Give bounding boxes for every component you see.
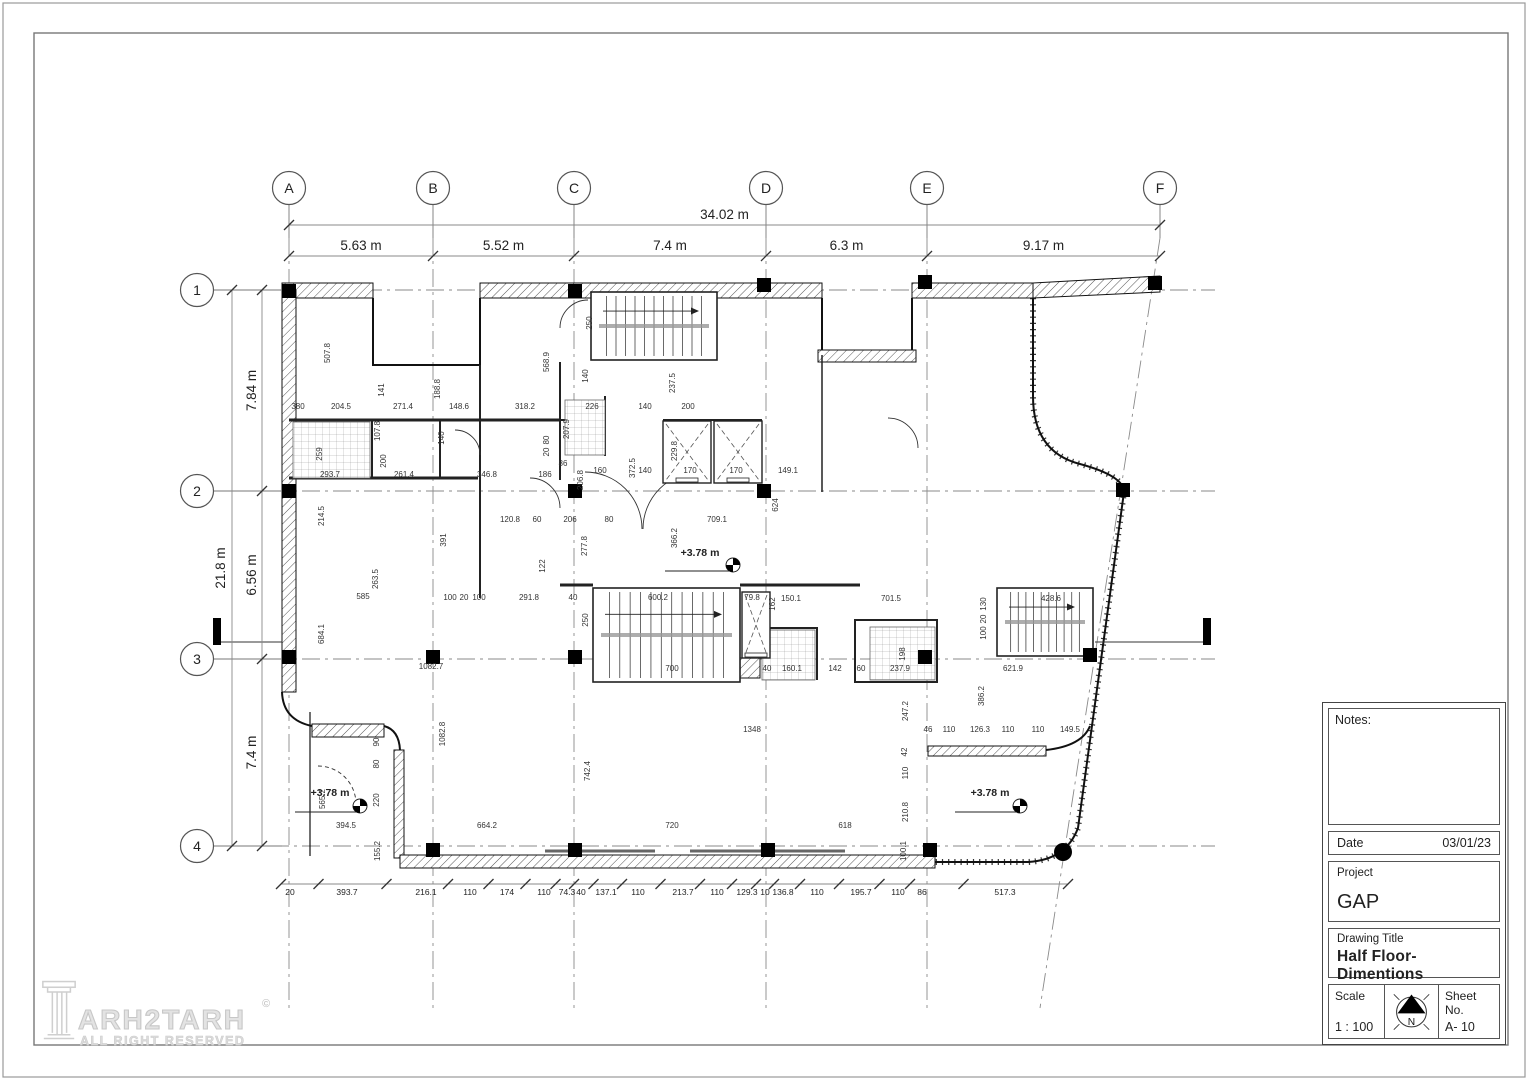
notes-label: Notes: [1335, 713, 1371, 727]
dimension-label: 162 [768, 597, 777, 611]
dimension-label: 391 [439, 533, 448, 547]
wall-top-4-slanted [1033, 276, 1160, 298]
structural-column [757, 484, 771, 498]
dimension-label: 621.9 [1003, 664, 1024, 673]
structural-column [761, 843, 775, 857]
dimension-label: 1082.7 [419, 662, 444, 671]
dimension-label: 79.8 [744, 593, 760, 602]
dimension-label: 720 [665, 821, 679, 830]
dimension-label: 100.1 [899, 840, 908, 861]
date-label: Date [1337, 836, 1363, 850]
dim-text-top-segment: 6.3 m [830, 238, 864, 253]
dim-text-bottom: 110 [537, 887, 551, 897]
dimension-label: 60 [857, 664, 866, 673]
dim-text-bottom: 213.7 [672, 887, 694, 897]
structural-column [426, 843, 440, 857]
dimension-label: 1348 [743, 725, 761, 734]
dimension-label: 110 [901, 766, 910, 779]
level-marker-text: +3.78 m [971, 787, 1010, 799]
dimension-label: 346.8 [477, 470, 498, 479]
dimension-label: 207.9 [562, 418, 571, 439]
dimension-label: 186 [538, 470, 552, 479]
date-value: 03/01/23 [1442, 836, 1491, 850]
dimension-label: 428.6 [1041, 594, 1062, 603]
dimension-label: 618 [838, 821, 852, 830]
dim-text-bottom: 129.3 [736, 887, 758, 897]
dimension-label: 80 [605, 515, 614, 524]
level-marker-text: +3.78 m [311, 787, 350, 799]
sheet-number-label: Sheet No. [1445, 989, 1476, 1017]
dimension-label: 237.9 [890, 664, 911, 673]
fixtures-layer [213, 275, 1211, 861]
grid-bubble-label-F: F [1156, 180, 1165, 196]
structural-column [282, 484, 296, 498]
dimension-label: 709.1 [707, 515, 728, 524]
dimension-label: 40 [569, 593, 578, 602]
dim-text-bottom: 110 [810, 887, 824, 897]
floor-plan-canvas: ABCDEF123434.02 m5.63 m5.52 m7.4 m6.3 m9… [0, 0, 1528, 1080]
dimension-label: 261.4 [394, 470, 415, 479]
sheet-number-cell: Sheet No. A- 10 [1439, 985, 1499, 1038]
structural-column [757, 278, 771, 292]
north-arrow-icon: N [1391, 989, 1432, 1035]
structural-column [923, 843, 937, 857]
outer-border [3, 3, 1525, 1077]
logo-copyright: © [262, 998, 270, 1010]
dimension-label: 291.8 [519, 593, 540, 602]
elevator-door [727, 478, 749, 482]
dim-text-bottom: 110 [891, 887, 905, 897]
staircase [591, 292, 717, 360]
dimension-label: 220 [372, 793, 381, 807]
dim-text-left-segment: 7.84 m [244, 370, 259, 411]
dimension-label: 277.8 [580, 535, 589, 556]
dimension-label: 40 [763, 664, 772, 673]
dimension-label: 170 [683, 466, 697, 475]
dim-text-bottom: 20 [285, 887, 295, 897]
wall-bottom [400, 855, 935, 868]
elevator-door [676, 478, 698, 482]
dimension-label: 126.3 [970, 725, 991, 734]
dimension-label: 271.4 [393, 402, 414, 411]
dimension-label: 140 [638, 402, 652, 411]
dimension-label: 60 [533, 515, 542, 524]
dimension-label: 140 [638, 466, 652, 475]
scale-value: 1 : 100 [1335, 1020, 1373, 1034]
structural-column [282, 284, 296, 298]
dim-text-bottom: 195.7 [850, 887, 872, 897]
dimension-label: 263.5 [371, 568, 380, 589]
stair-rail [599, 324, 709, 328]
stair-rail [601, 633, 732, 637]
dimension-label: 140 [581, 369, 590, 383]
level-marker-text: +3.78 m [681, 547, 720, 559]
dimension-label: 200 [379, 454, 388, 468]
dimension-label: 394.5 [336, 821, 357, 830]
logo-brand: ARH2TARH [78, 1004, 246, 1036]
dimension-label: 160.1 [782, 664, 803, 673]
drawing-title-value: Half Floor- Dimentions [1337, 948, 1491, 984]
column-icon [40, 978, 78, 1044]
dimension-label: 80 [372, 759, 381, 768]
structural-column [568, 650, 582, 664]
dimension-label: 664.2 [477, 821, 498, 830]
dimension-label: 206 [563, 515, 577, 524]
dim-text-bottom: 216.1 [415, 887, 437, 897]
section-marker [213, 618, 221, 645]
dimension-label: 20 [542, 447, 551, 456]
dim-text-top-segment: 7.4 m [653, 238, 687, 253]
grid-bubble-label-2: 2 [193, 483, 201, 499]
dim-text-bottom: 110 [463, 887, 477, 897]
dim-text-bottom: 86 [917, 887, 927, 897]
logo-tagline: ALL RIGHT RESERVED [80, 1034, 245, 1048]
dimension-label: 149.5 [1060, 725, 1081, 734]
structural-column [568, 284, 582, 298]
structural-column [1083, 648, 1097, 662]
dimension-label: 507.8 [323, 342, 332, 363]
dimension-label: 122 [538, 559, 547, 573]
dim-text-top-total: 34.02 m [700, 207, 749, 222]
dimension-label: 141 [377, 383, 386, 397]
dim-text-left-segment: 6.56 m [244, 554, 259, 595]
title-block-bottom-row: Scale 1 : 100 N Sheet No. A- 10 [1328, 984, 1500, 1039]
structural-column [1148, 276, 1162, 290]
notes-box: Notes: [1328, 708, 1500, 825]
dimension-label: 226 [585, 402, 599, 411]
dimension-label: 700 [665, 664, 679, 673]
door-arcs [318, 300, 931, 804]
grid-bubble-label-E: E [922, 180, 931, 196]
dimension-label: 250 [581, 613, 590, 627]
dim-text-bottom: 137.1 [595, 887, 617, 897]
dimension-label: 380 [291, 402, 305, 411]
dimension-label: 148.6 [449, 402, 470, 411]
dim-text-bottom: 136.8 [772, 887, 794, 897]
wall-curtain-right [935, 298, 1124, 862]
dimension-label: 20 [460, 593, 469, 602]
date-box: Date 03/01/23 [1328, 831, 1500, 855]
dim-text-top-segment: 5.52 m [483, 238, 524, 253]
drawing-title-label: Drawing Title [1337, 933, 1491, 945]
structural-column [282, 650, 296, 664]
dimension-label: 110 [943, 725, 956, 734]
dimension-label: 684.1 [317, 623, 326, 644]
section-marker [1203, 618, 1211, 645]
grid-bubble-label-4: 4 [193, 838, 201, 854]
grid-bubble-label-3: 3 [193, 651, 201, 667]
dimension-label: 200 [681, 402, 695, 411]
elevator-door [745, 653, 767, 657]
dimension-label: 229.8 [670, 440, 679, 461]
project-box: Project GAP [1328, 861, 1500, 922]
firm-logo: ARH2TARH © ALL RIGHT RESERVED [40, 976, 270, 1048]
dimension-label: 160 [593, 466, 607, 475]
dimension-label: 1082.8 [438, 721, 447, 746]
scale-cell: Scale 1 : 100 [1329, 985, 1385, 1038]
structural-column [568, 843, 582, 857]
grid-bubble-label-D: D [761, 180, 771, 196]
dimension-label: 742.4 [583, 760, 592, 781]
project-value: GAP [1337, 891, 1491, 914]
wall-recess-floor [818, 350, 916, 362]
dimension-label: 130 [979, 597, 988, 611]
dim-text-bottom: 74.3 [559, 887, 576, 897]
drawing-title-box: Drawing Title Half Floor- Dimentions [1328, 928, 1500, 978]
dimension-label: 237.5 [668, 372, 677, 393]
dimension-label: 247.2 [901, 700, 910, 721]
dimension-label: 372.5 [628, 457, 637, 478]
dimension-label: 568.9 [542, 351, 551, 372]
dimension-label: 110 [1032, 725, 1045, 734]
north-label: N [1408, 1017, 1415, 1028]
walls-layer [282, 276, 1160, 868]
dim-text-bottom: 517.3 [994, 887, 1016, 897]
dimension-label: 585 [356, 592, 370, 601]
dimension-label: 86 [559, 459, 568, 468]
drawing-sheet: ABCDEF123434.02 m5.63 m5.52 m7.4 m6.3 m9… [0, 0, 1528, 1080]
dim-text-top-segment: 5.63 m [340, 238, 381, 253]
dimension-label: 386.2 [977, 685, 986, 706]
wall-notch-outline [373, 298, 480, 365]
dimension-label: 188.8 [433, 378, 442, 399]
dimension-label: 142 [828, 664, 842, 673]
dimension-label: 150.1 [781, 594, 802, 603]
dimension-label: 100 [472, 593, 486, 602]
dimension-label: 204.5 [331, 402, 352, 411]
scale-label: Scale [1335, 989, 1365, 1003]
dimension-label: 214.5 [317, 505, 326, 526]
dimension-label: 366.2 [670, 527, 679, 548]
grid-bubble-label-B: B [428, 180, 437, 196]
dimension-label: 110 [1002, 725, 1015, 734]
wall-corner-arc-ledge [384, 726, 400, 750]
dimension-label: 42 [900, 747, 909, 756]
dimension-label: 120.8 [500, 515, 521, 524]
grid-bubble-label-C: C [569, 180, 579, 196]
dimensions-layer: ABCDEF123434.02 m5.63 m5.52 m7.4 m6.3 m9… [181, 172, 1177, 898]
dimension-label: 624 [771, 498, 780, 512]
structural-column [918, 275, 932, 289]
dim-text-bottom: 110 [631, 887, 645, 897]
compass-cell: N [1385, 985, 1439, 1038]
dimension-label: 701.5 [881, 594, 902, 603]
dimension-label: 100 [443, 593, 457, 602]
dimension-label: 318.2 [515, 402, 536, 411]
dim-text-left-segment: 7.4 m [244, 736, 259, 770]
dimension-label: 140 [437, 431, 446, 445]
grid-bubble-label-1: 1 [193, 282, 201, 298]
dim-text-left-total: 21.8 m [213, 547, 228, 588]
dimension-label: 259 [315, 447, 324, 461]
dim-text-bottom: 10 [760, 887, 770, 897]
dimension-label: 293.7 [320, 470, 341, 479]
stair-rail [1005, 620, 1085, 624]
wall-curtain-right-mullions [935, 298, 1124, 862]
dimension-label: 90 [372, 737, 381, 746]
dimension-label: 155.2 [373, 840, 382, 861]
dimension-label: 250 [585, 316, 594, 330]
dim-text-bottom: 110 [710, 887, 724, 897]
wall-terrace-bottom-right [928, 746, 1046, 756]
sheet-number-value: A- 10 [1445, 1020, 1475, 1034]
wall-terrace-ledge [312, 724, 384, 737]
wall-recess-sides [822, 298, 912, 350]
dimension-label: 107.8 [373, 420, 382, 441]
dim-text-bottom: 174 [500, 887, 514, 897]
dimension-label: 600.2 [648, 593, 669, 602]
wall-lower-left [394, 750, 404, 858]
dimension-label: 210.8 [901, 801, 910, 822]
dim-text-top-segment: 9.17 m [1023, 238, 1064, 253]
dimension-label: 46 [924, 725, 933, 734]
dimension-label: 149.1 [778, 466, 799, 475]
dim-text-bottom: 393.7 [336, 887, 358, 897]
dimension-label: 170 [729, 466, 743, 475]
round-column [1054, 843, 1072, 861]
grid-bubble-label-A: A [284, 180, 294, 196]
dim-text-bottom: 40 [576, 887, 586, 897]
structural-column [1116, 483, 1130, 497]
dimension-label: 80 [542, 435, 551, 444]
dimension-label: 198 [898, 647, 907, 661]
dimension-label: 100 [979, 626, 988, 640]
dimension-label: 206.8 [576, 469, 585, 490]
structural-column [918, 650, 932, 664]
wall-corner-arc-left [282, 692, 312, 726]
dimension-label: 20 [979, 614, 988, 623]
title-block: Notes: Date 03/01/23 Project GAP Drawing… [1322, 702, 1506, 1045]
project-label: Project [1337, 867, 1491, 879]
